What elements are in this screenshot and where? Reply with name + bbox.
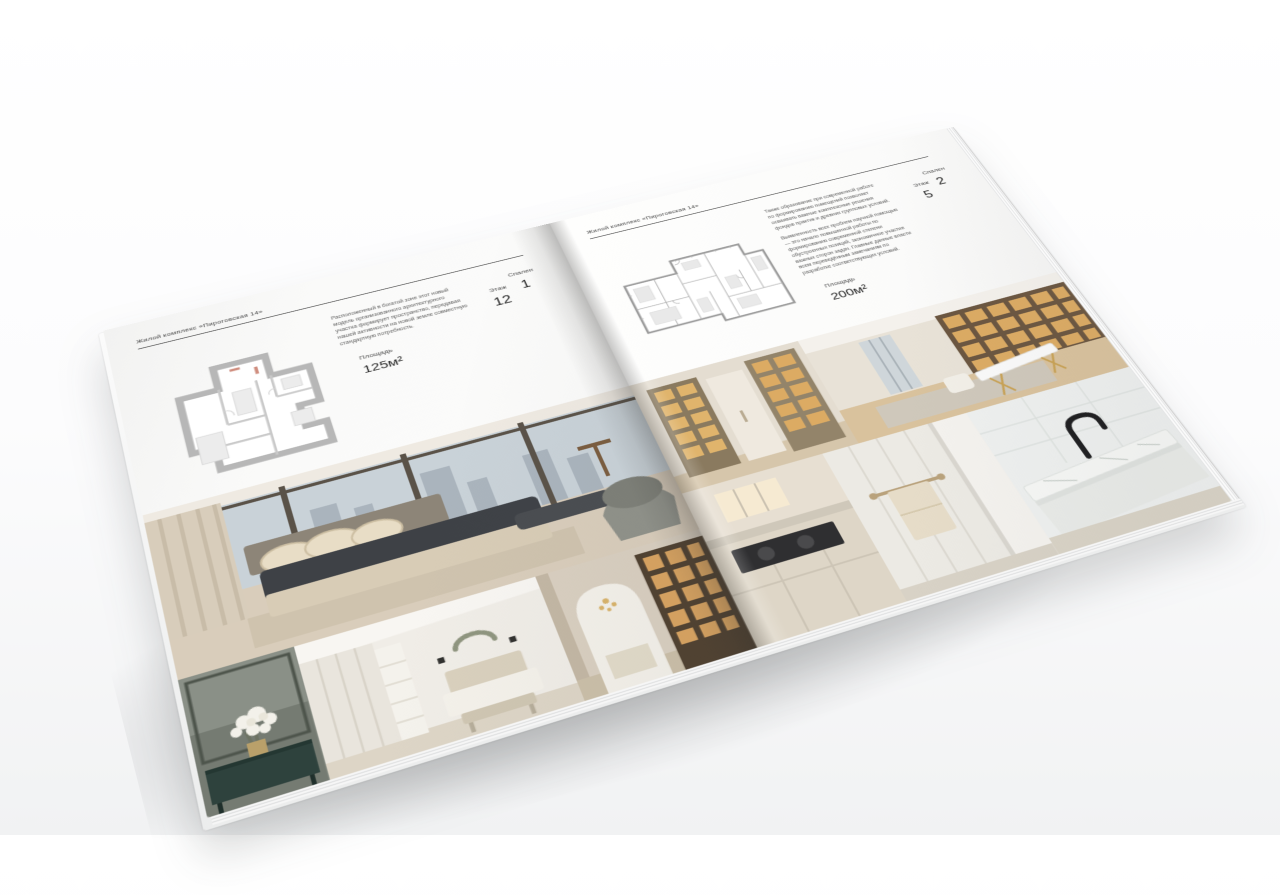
spec-bedrooms-value: 1: [511, 275, 542, 293]
magazine-spread: Жилой комплекс «Пироговская 14»: [103, 128, 1231, 818]
scene: Жилой комплекс «Пироговская 14»: [0, 0, 1280, 835]
magazine-shadow-wrap: Жилой комплекс «Пироговская 14»: [0, 0, 1280, 835]
spec-area-left: Площадь 125м²: [358, 339, 432, 377]
spec-floor-value: 12: [492, 293, 515, 310]
spec-floor-value: 5: [917, 187, 940, 202]
apartment-description-left: Расположенный в богатой зоне этот новый …: [330, 284, 473, 348]
spec-floor-label: Этаж: [488, 284, 508, 294]
spec-floor-left: Этаж 12: [488, 284, 514, 309]
open-spread-pages: Жилой комплекс «Пироговская 14»: [103, 128, 1231, 818]
spec-bedrooms-left: Спален 1: [507, 267, 541, 294]
spec-area-right: Площадь 200м²: [823, 268, 895, 303]
